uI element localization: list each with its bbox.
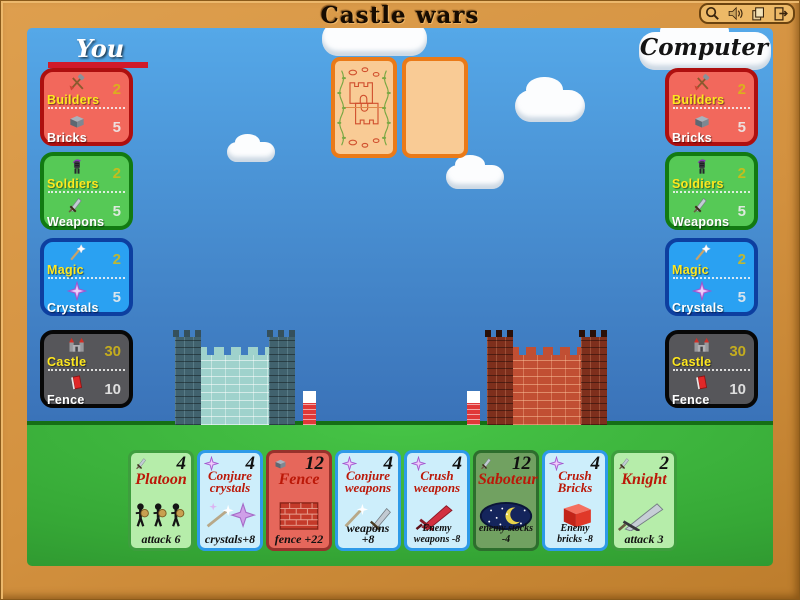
brick-icon	[67, 111, 87, 131]
card-title: Saboteur	[476, 472, 536, 499]
stat-value: 30	[104, 343, 121, 360]
card-title: Platoon	[131, 472, 191, 499]
dotted-divider	[48, 191, 125, 193]
brick-wall-art	[269, 499, 329, 532]
sword-icon	[692, 195, 712, 215]
dotted-divider	[673, 277, 750, 279]
stat-row: 5 Crystals	[44, 280, 129, 313]
stat-row: 5 Weapons	[44, 194, 129, 227]
stat-label: Weapons	[672, 215, 729, 229]
card-cost: 2	[660, 453, 670, 475]
card-effect: enemy stocks -4	[476, 523, 536, 545]
stat-label: Crystals	[47, 301, 99, 315]
soldier-icon	[67, 157, 87, 177]
hand-card-conjure-weapons[interactable]: 4 Conjure weapons weapons +8	[335, 450, 401, 551]
dotted-divider	[673, 369, 750, 371]
sword-icon	[67, 195, 87, 215]
stat-panel-computer-castle: 30 Castle 10 Fence	[665, 330, 758, 408]
card-cost: 4	[591, 453, 601, 475]
hand-card-fence[interactable]: 12 Fence fence +22	[266, 450, 332, 551]
stat-label: Bricks	[672, 131, 712, 145]
card-cost: 4	[177, 453, 187, 475]
red-castle-computer	[487, 330, 607, 425]
stat-label: Magic	[672, 263, 709, 277]
fence-icon	[692, 373, 712, 393]
stat-label: Weapons	[47, 215, 104, 229]
cloud	[446, 165, 504, 189]
stat-panel-computer-magic: 2 Magic 5 Crystals	[665, 238, 758, 316]
hand-card-saboteur[interactable]: 12 Saboteur enemy stocks -4	[473, 450, 539, 551]
fence-cap	[303, 391, 316, 403]
card-cost: 4	[453, 453, 463, 475]
stat-value: 2	[113, 251, 121, 268]
crystal-icon	[692, 281, 712, 301]
played-pile-empty-card	[402, 57, 468, 158]
stat-value: 10	[729, 381, 746, 398]
sword-icon	[480, 456, 495, 471]
castle-tower	[269, 337, 295, 425]
sword-icon	[618, 456, 633, 471]
fence-pole-you	[303, 391, 316, 425]
card-cost: 12	[305, 453, 324, 475]
wand-crystal-art	[200, 499, 260, 532]
game-title: Castle wars	[0, 2, 800, 29]
stat-value: 5	[113, 289, 121, 306]
stat-value: 2	[738, 81, 746, 98]
stat-value: 5	[738, 289, 746, 306]
dotted-divider	[48, 277, 125, 279]
sky-background	[27, 28, 773, 425]
stat-row: 2 Builders	[44, 72, 129, 105]
card-effect: crystals+8	[200, 534, 260, 545]
hand-card-crush-weapons[interactable]: 4 Crush weapons Enemy weapons -8	[404, 450, 470, 551]
game-board: You Computer 2 Builders 5 Bricks 2 Soldi…	[27, 28, 773, 566]
hand-card-crush-bricks[interactable]: 4 Crush Bricks Enemy bricks -8	[542, 450, 608, 551]
cloud	[322, 28, 427, 56]
crystal-icon	[549, 456, 564, 471]
dotted-divider	[673, 107, 750, 109]
stat-row: 10 Fence	[669, 372, 754, 405]
stat-value: 2	[113, 81, 121, 98]
cloud	[227, 142, 275, 162]
card-effect: attack 6	[131, 534, 191, 545]
stat-row: 2 Soldiers	[44, 156, 129, 189]
castle-tower	[175, 337, 201, 425]
stat-row: 5 Crystals	[669, 280, 754, 313]
card-title: Knight	[614, 472, 674, 499]
stat-panel-computer-builders: 2 Builders 5 Bricks	[665, 68, 758, 146]
stat-value: 2	[738, 165, 746, 182]
crystal-icon	[342, 456, 357, 471]
cloud	[515, 90, 585, 122]
stat-label: Fence	[47, 393, 85, 407]
stat-row: 2 Soldiers	[669, 156, 754, 189]
stat-panel-you-soldiers: 2 Soldiers 5 Weapons	[40, 152, 133, 230]
stat-row: 2 Magic	[669, 242, 754, 275]
stat-label: Fence	[672, 393, 710, 407]
dotted-divider	[48, 107, 125, 109]
tools-icon	[692, 73, 712, 93]
stat-row: 5 Weapons	[669, 194, 754, 227]
card-effect: Enemy bricks -8	[545, 523, 605, 545]
wand-icon	[67, 243, 87, 263]
castle-tower	[581, 337, 607, 425]
castle-keep	[197, 355, 273, 425]
card-back-pattern	[336, 62, 392, 153]
stat-row: 5 Bricks	[44, 110, 129, 143]
stat-label: Castle	[47, 355, 86, 369]
blue-castle-you	[175, 330, 295, 425]
tools-icon	[67, 73, 87, 93]
card-effect: weapons +8	[338, 523, 398, 545]
castle-keep	[509, 355, 585, 425]
fence-icon	[67, 373, 87, 393]
stat-value: 5	[738, 203, 746, 220]
stat-panel-computer-soldiers: 2 Soldiers 5 Weapons	[665, 152, 758, 230]
platoon-art	[131, 499, 191, 532]
sound-icon[interactable]	[727, 5, 744, 22]
stat-panel-you-builders: 2 Builders 5 Bricks	[40, 68, 133, 146]
stat-row: 2 Magic	[44, 242, 129, 275]
brick-icon	[692, 111, 712, 131]
stat-label: Soldiers	[47, 177, 99, 191]
card-effect: Enemy weapons -8	[407, 523, 467, 545]
card-cost: 12	[512, 453, 531, 475]
crystal-icon	[67, 281, 87, 301]
hand-card-platoon[interactable]: 4 Platoon attack 6	[128, 450, 194, 551]
magnifier-icon[interactable]	[704, 5, 721, 22]
exit-icon[interactable]	[773, 5, 790, 22]
stat-value: 10	[104, 381, 121, 398]
card-title: Fence	[269, 472, 329, 499]
player-label-computer: Computer	[639, 34, 769, 61]
stat-value: 5	[113, 203, 121, 220]
stat-row: 30 Castle	[669, 334, 754, 367]
card-effect: fence +22	[269, 534, 329, 545]
stat-label: Castle	[672, 355, 711, 369]
castle-icon	[692, 335, 712, 355]
stat-row: 10 Fence	[44, 372, 129, 405]
hand-card-knight[interactable]: 2 Knight attack 3	[611, 450, 677, 551]
card-cost: 4	[384, 453, 394, 475]
brick-icon	[273, 456, 288, 471]
stat-label: Soldiers	[672, 177, 724, 191]
player-label-you: You	[45, 34, 155, 63]
stat-label: Builders	[47, 93, 99, 107]
big-sword-art	[614, 499, 674, 532]
fence-shaft	[467, 403, 480, 425]
stat-panel-you-magic: 2 Magic 5 Crystals	[40, 238, 133, 316]
crystal-icon	[411, 456, 426, 471]
stat-label: Magic	[47, 263, 84, 277]
stat-row: 5 Bricks	[669, 110, 754, 143]
wand-icon	[692, 243, 712, 263]
castle-tower	[487, 337, 513, 425]
stat-value: 5	[113, 119, 121, 136]
player-hand: 4 Platoon attack 6 4 Conjure crystals cr…	[128, 450, 677, 551]
deck-card-back[interactable]	[331, 57, 397, 158]
stat-row: 30 Castle	[44, 334, 129, 367]
fence-pole-computer	[467, 391, 480, 425]
stat-value: 2	[113, 165, 121, 182]
castle-icon	[67, 335, 87, 355]
cards-icon[interactable]	[750, 5, 767, 22]
crystal-icon	[204, 456, 219, 471]
stat-row: 2 Builders	[669, 72, 754, 105]
fence-shaft	[303, 403, 316, 425]
card-cost: 4	[246, 453, 256, 475]
stat-label: Builders	[672, 93, 724, 107]
toolbar	[699, 3, 795, 24]
sword-icon	[135, 456, 150, 471]
dotted-divider	[673, 191, 750, 193]
hand-card-conjure-crystals[interactable]: 4 Conjure crystals crystals+8	[197, 450, 263, 551]
stat-value: 2	[738, 251, 746, 268]
stat-value: 30	[729, 343, 746, 360]
stat-panel-you-castle: 30 Castle 10 Fence	[40, 330, 133, 408]
stat-label: Bricks	[47, 131, 87, 145]
fence-cap	[467, 391, 480, 403]
soldier-icon	[692, 157, 712, 177]
stat-value: 5	[738, 119, 746, 136]
card-effect: attack 3	[614, 534, 674, 545]
dotted-divider	[48, 369, 125, 371]
stat-label: Crystals	[672, 301, 724, 315]
